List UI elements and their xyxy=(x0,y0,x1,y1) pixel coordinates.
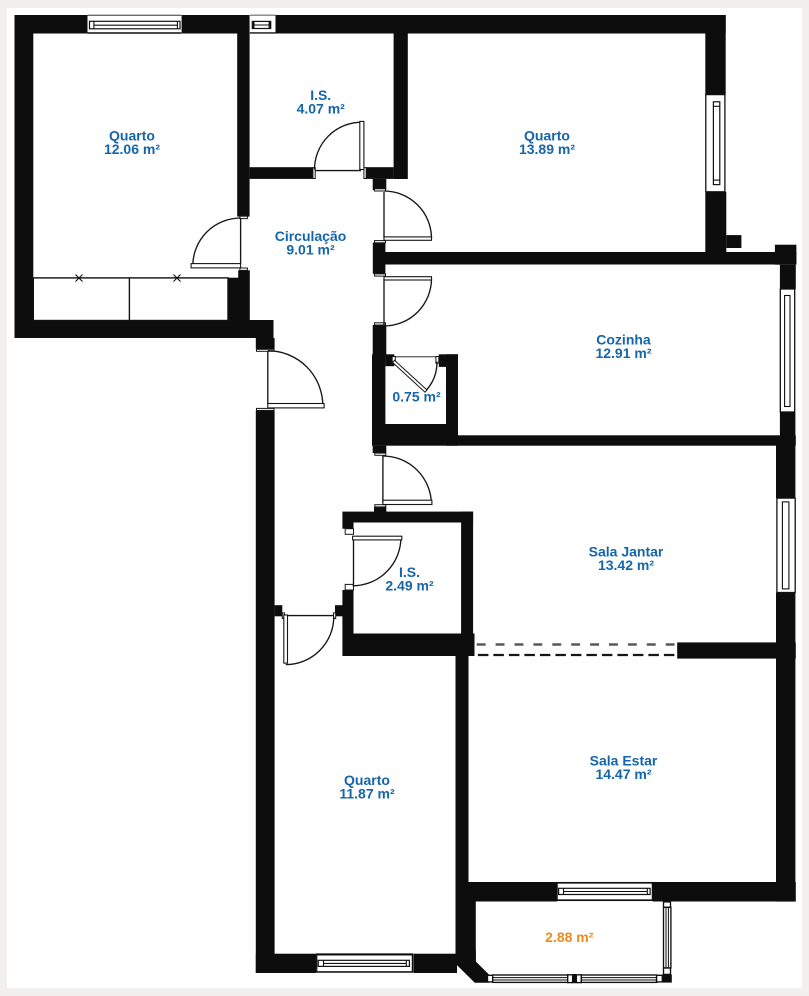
svg-text:11.87 m²: 11.87 m² xyxy=(339,786,395,802)
svg-text:0.75 m²: 0.75 m² xyxy=(392,388,441,404)
svg-text:13.42 m²: 13.42 m² xyxy=(598,557,654,573)
svg-text:12.91 m²: 12.91 m² xyxy=(595,345,651,361)
svg-text:12.06 m²: 12.06 m² xyxy=(104,141,160,157)
svg-text:13.89 m²: 13.89 m² xyxy=(519,141,575,157)
svg-text:2.49 m²: 2.49 m² xyxy=(385,577,434,593)
svg-text:2.88 m²: 2.88 m² xyxy=(545,929,594,945)
svg-text:9.01 m²: 9.01 m² xyxy=(286,242,335,258)
svg-text:14.47 m²: 14.47 m² xyxy=(595,766,651,782)
svg-text:4.07 m²: 4.07 m² xyxy=(297,100,346,116)
